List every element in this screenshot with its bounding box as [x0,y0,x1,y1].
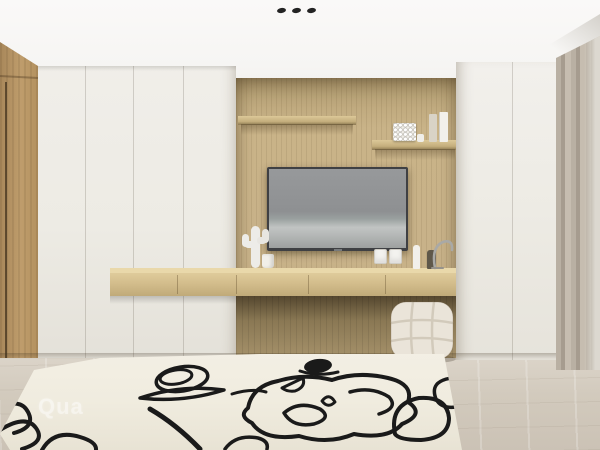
drawer-seam [308,275,309,294]
right-cabinet [456,62,556,360]
tv-screen [269,169,406,248]
mini-vase-decor [417,134,424,142]
bead-cube-decor [393,123,416,141]
ceiling-lights [277,8,316,13]
light-switch [374,249,402,264]
room-scene: Qua [0,0,600,450]
wood-door-panel [0,42,38,358]
bud-vase-decor [413,245,420,269]
left-wardrobe [38,66,236,358]
cup-decor [262,254,274,268]
book [439,112,448,142]
wardrobe-door-seam [133,66,134,358]
door-gap-line [5,82,7,358]
wardrobe-door-seam [183,66,184,358]
shelf-shadow [375,149,455,160]
metal-arc-decor [430,238,456,270]
drawer-seam [385,275,386,294]
sheer-curtain [584,36,600,370]
book [429,114,437,142]
cabinet-door-seam [512,62,513,360]
floating-console [110,273,456,296]
books-decor [429,112,449,142]
watermark: Qua [38,394,84,420]
wardrobe-door-seam [85,66,86,358]
tv [267,167,408,251]
wardrobe-top-shadow [38,66,236,71]
ceiling-light-dot [277,7,287,13]
ceiling-light-dot [292,7,302,13]
curtain [556,36,600,370]
ceiling-light-dot [307,7,317,13]
band-shadow [110,296,236,304]
shelf-shadow [241,124,353,135]
drawer-seam [236,275,237,294]
tv-logo [334,249,342,251]
drawer-seam [177,275,178,294]
